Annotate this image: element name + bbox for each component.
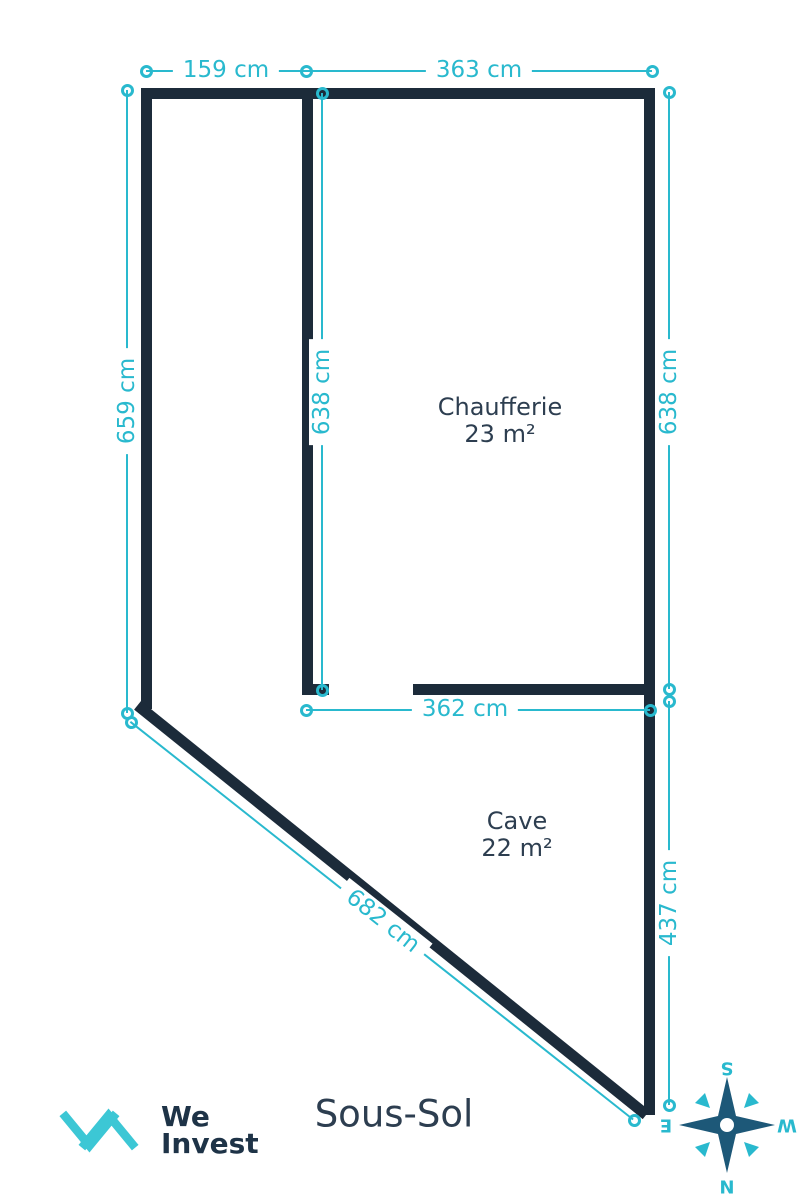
wall-diagonal bbox=[134, 701, 650, 1119]
dimension-endpoint bbox=[300, 65, 313, 78]
floor-title: Sous-Sol bbox=[315, 1093, 474, 1136]
compass-letter-east: E bbox=[660, 1115, 672, 1136]
room-area: 22 m² bbox=[481, 835, 552, 862]
dimension-endpoint bbox=[125, 716, 138, 729]
weinvest-logo-icon bbox=[53, 1100, 145, 1161]
dimension-endpoint bbox=[663, 683, 676, 696]
floor-plan-canvas: 159 cm 363 cm 659 cm 638 cm 638 cm 362 c… bbox=[0, 0, 799, 1200]
wall-top bbox=[141, 88, 655, 99]
compass-rose: S W N E bbox=[657, 1055, 797, 1195]
dimension-endpoint bbox=[663, 1099, 676, 1112]
dimension-label: 682 cm bbox=[333, 878, 432, 964]
room-name: Cave bbox=[481, 808, 552, 835]
logo-word-2: Invest bbox=[161, 1131, 259, 1158]
weinvest-logo-text: We Invest bbox=[161, 1104, 259, 1157]
dimension-endpoint bbox=[316, 87, 329, 100]
room-name: Chaufferie bbox=[438, 394, 563, 421]
dimension-label: 363 cm bbox=[426, 57, 532, 83]
compass-letter-west: W bbox=[777, 1115, 797, 1136]
room-label-cave: Cave 22 m² bbox=[481, 808, 552, 862]
room-label-chaufferie: Chaufferie 23 m² bbox=[438, 394, 563, 448]
dimension-label: 159 cm bbox=[173, 57, 279, 83]
dimension-endpoint bbox=[121, 84, 134, 97]
room-area: 23 m² bbox=[438, 421, 563, 448]
weinvest-logo: We Invest bbox=[53, 1100, 259, 1161]
dimension-label: 659 cm bbox=[114, 348, 140, 454]
dimension-endpoint bbox=[300, 704, 313, 717]
dimension-endpoint bbox=[140, 65, 153, 78]
dimension-endpoint bbox=[316, 684, 329, 697]
dimension-label: 362 cm bbox=[412, 696, 518, 722]
dimension-endpoint bbox=[663, 695, 676, 708]
dimension-endpoint bbox=[663, 86, 676, 99]
dimension-label: 437 cm bbox=[656, 850, 682, 956]
dimension-endpoint bbox=[628, 1114, 641, 1127]
wall-right bbox=[644, 88, 655, 1115]
dimension-endpoint bbox=[644, 704, 657, 717]
compass-letter-north: N bbox=[719, 1176, 734, 1197]
dimension-label: 638 cm bbox=[656, 339, 682, 445]
wall-chaufferie-bottom bbox=[413, 684, 655, 695]
wall-left bbox=[141, 88, 152, 709]
dimension-label: 638 cm bbox=[309, 339, 335, 445]
dimension-endpoint bbox=[646, 65, 659, 78]
compass-letter-south: S bbox=[721, 1058, 734, 1079]
